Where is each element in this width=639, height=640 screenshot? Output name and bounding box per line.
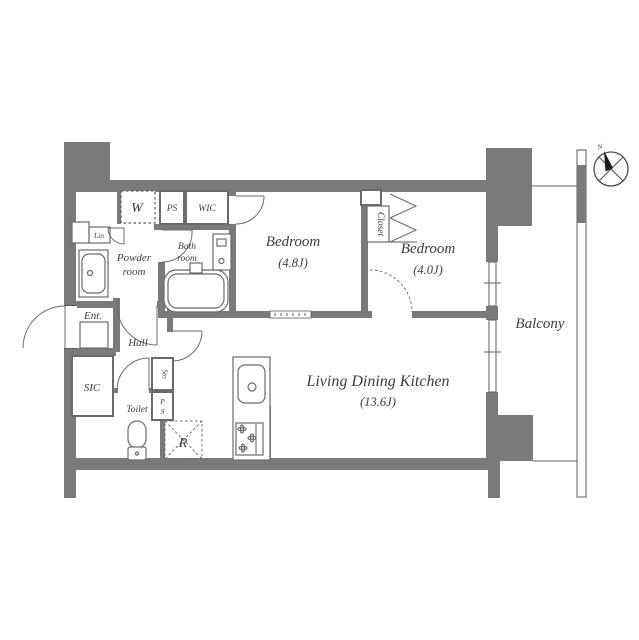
fixtures: [79, 234, 270, 460]
pipe-space-lower-label-p: P: [159, 397, 165, 406]
bath-panel-display: [217, 239, 226, 246]
washer-label: W: [131, 201, 144, 216]
closet-bifold-door-1: [390, 194, 416, 218]
entrance-door-arc: [23, 306, 65, 348]
bath-panel-knob: [219, 259, 224, 264]
linen-label: Lin: [93, 231, 104, 240]
toilet-bowl: [128, 421, 146, 448]
bedroom2-name: Bedroom: [401, 241, 456, 257]
wall-right-lower: [486, 392, 498, 461]
balcony-label: Balcony: [515, 316, 564, 332]
compass-north-label: N: [596, 142, 604, 151]
wall-powder-bottom: [76, 301, 117, 308]
toilet-label: Toilet: [126, 405, 148, 415]
bath-faucet-box: [190, 263, 202, 273]
wall-right-upper: [486, 224, 498, 262]
ldk-area: (13.6J): [360, 395, 396, 409]
vanity-faucet: [88, 271, 93, 276]
wic-label: WIC: [198, 204, 216, 214]
property-line-wall-segment: [577, 165, 586, 223]
wall-bottom-right-stub: [488, 470, 500, 498]
wall-bottom-left-stub: [64, 470, 76, 498]
bedroom1-name: Bedroom: [266, 234, 321, 250]
ldk-name: Living Dining Kitchen: [305, 373, 449, 390]
refrigerator-label: R: [178, 436, 188, 451]
vanity-basin: [82, 254, 105, 293]
toilet-door-arc: [117, 358, 149, 390]
wall-entrance-hall: [113, 298, 120, 352]
storage-label: Sto: [161, 369, 170, 379]
pillar-bottom-right: [498, 415, 533, 461]
toilet-button: [136, 452, 139, 455]
wall-bedroom1-bottom-right: [311, 311, 368, 318]
compass-needle-icon: [604, 151, 613, 172]
floor-plan-page: N: [0, 0, 639, 640]
wall-bedroom1-left-stub: [229, 192, 236, 196]
closet-bifold-door-2: [390, 218, 416, 242]
window-bedroom2: [489, 262, 496, 306]
wall-bedroom1-bottom-left: [236, 311, 270, 318]
sliding-door-hatch: [270, 311, 311, 318]
sic-label: SIC: [84, 382, 101, 394]
hall-label: Hall: [127, 337, 148, 349]
pipe-space-upper-label: PS: [166, 204, 178, 214]
bedroom2-door-arc: [370, 270, 412, 312]
compass: N: [594, 142, 628, 186]
bedroom1-area: (4.8J): [278, 256, 308, 270]
wall-bedroom2-bottom: [412, 311, 488, 318]
bathtub-inner: [168, 274, 224, 308]
bedroom2-area: (4.0J): [413, 263, 443, 277]
floor-plan-drawing: N: [0, 0, 639, 640]
entrance-label: Ent.: [83, 310, 102, 322]
bath-room-label-line2: room: [177, 254, 197, 264]
interior-walls: [70, 191, 488, 460]
cabinet-box: [72, 222, 89, 243]
pipe-space-lower-label-s: S: [161, 407, 165, 416]
closet-label: Closet: [375, 212, 385, 237]
ldk-door-arc: [172, 331, 202, 361]
powder-room-label-line1: Powder: [116, 252, 152, 264]
wall-entrance-sic: [70, 348, 116, 356]
window-ldk: [489, 320, 496, 392]
wall-bedroom2-bottom-stub: [368, 311, 372, 318]
utility-box: [361, 190, 381, 205]
bedroom1-door-arc: [236, 196, 264, 224]
entrance-step: [80, 322, 108, 348]
wall-top: [76, 180, 488, 192]
kitchen-faucet: [248, 383, 256, 391]
powder-room-label-line2: room: [123, 266, 146, 278]
pillar-top-right: [486, 148, 532, 226]
bath-room-label-line1: Bath: [178, 242, 196, 252]
